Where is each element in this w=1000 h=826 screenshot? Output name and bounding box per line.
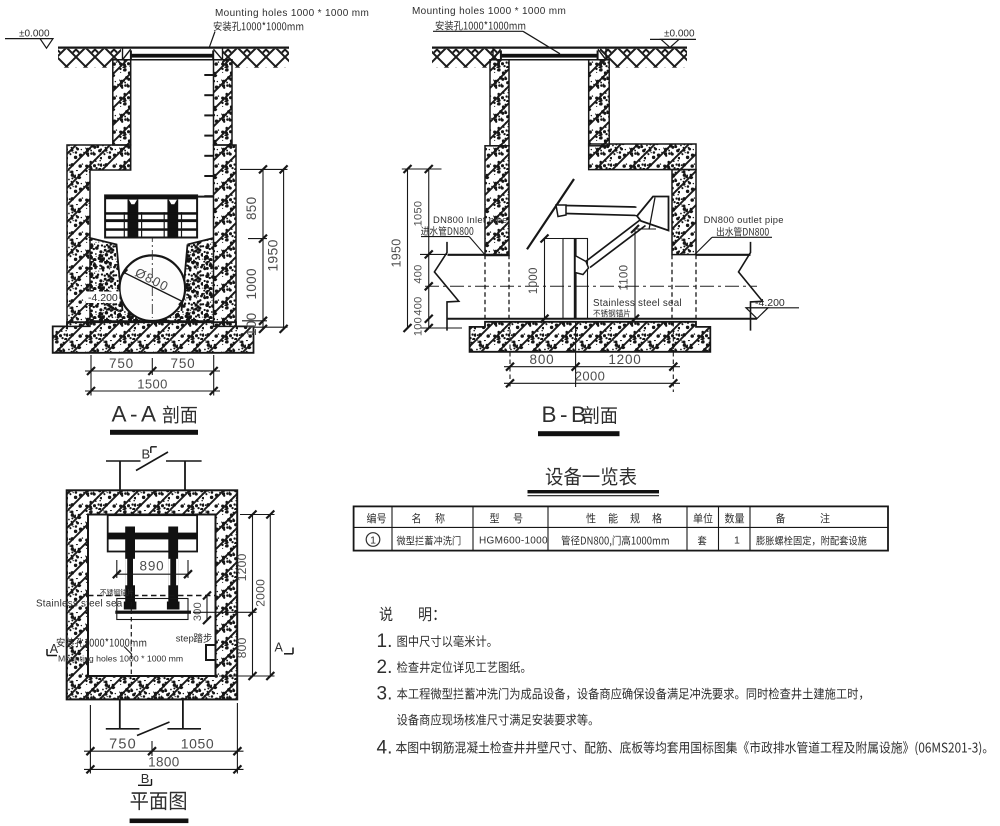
svg-text:100: 100 — [244, 313, 259, 336]
svg-text:1950: 1950 — [390, 238, 404, 267]
svg-text:1100: 1100 — [619, 265, 631, 291]
svg-text:2000: 2000 — [575, 369, 606, 384]
svg-text:850: 850 — [244, 197, 259, 220]
svg-text:4.: 4. — [377, 738, 393, 759]
svg-text:-4.200: -4.200 — [88, 292, 118, 304]
svg-text:800: 800 — [530, 352, 555, 367]
svg-text:Stainless steel sea: Stainless steel sea — [36, 599, 123, 610]
svg-text:400: 400 — [413, 264, 425, 283]
svg-text:1200: 1200 — [235, 553, 249, 581]
svg-text:400: 400 — [413, 296, 425, 315]
svg-text:DN800 outlet pipe: DN800 outlet pipe — [704, 214, 784, 225]
svg-text:B-B: B-B — [542, 402, 590, 427]
svg-text:800: 800 — [235, 637, 249, 658]
svg-text:Mounting holes 1000 * 1000 mm: Mounting holes 1000 * 1000 mm — [215, 8, 369, 19]
svg-text:300: 300 — [192, 602, 204, 621]
svg-text:1500: 1500 — [137, 377, 168, 392]
svg-text:Mounting holes 1000 * 1000 mm: Mounting holes 1000 * 1000 mm — [58, 654, 183, 664]
svg-text:1000: 1000 — [244, 268, 259, 299]
svg-text:DN800 Inlet pipe: DN800 Inlet pipe — [433, 214, 508, 225]
svg-text:1050: 1050 — [413, 201, 425, 227]
svg-text:Mounting holes 1000 * 1000 mm: Mounting holes 1000 * 1000 mm — [412, 6, 566, 17]
svg-text:750: 750 — [109, 737, 137, 753]
svg-text:A-A: A-A — [112, 402, 160, 427]
svg-text:750: 750 — [109, 356, 134, 371]
svg-text:±0.000: ±0.000 — [19, 29, 50, 40]
svg-text:1800: 1800 — [148, 755, 180, 770]
svg-text:B: B — [141, 771, 150, 786]
svg-text:1000: 1000 — [528, 267, 540, 294]
svg-text:1: 1 — [370, 535, 376, 547]
svg-text:1950: 1950 — [265, 239, 281, 271]
svg-text:Stainless steel seal: Stainless steel seal — [593, 298, 682, 309]
svg-text:1200: 1200 — [608, 352, 641, 367]
svg-text:A: A — [275, 641, 284, 655]
svg-text:2000: 2000 — [254, 579, 268, 607]
svg-text:step: step — [176, 634, 194, 645]
svg-text:±0.000: ±0.000 — [664, 29, 695, 40]
svg-text:B: B — [142, 447, 151, 462]
svg-text:2.: 2. — [377, 657, 393, 678]
svg-text:890: 890 — [140, 559, 165, 574]
svg-text:HGM600-1000: HGM600-1000 — [479, 536, 548, 547]
svg-text:100: 100 — [413, 317, 425, 336]
svg-text:A: A — [50, 642, 59, 656]
svg-text:1: 1 — [734, 535, 740, 547]
svg-text:3.: 3. — [377, 684, 393, 705]
svg-text:1.: 1. — [377, 631, 393, 652]
svg-text:1050: 1050 — [181, 736, 215, 752]
svg-text:750: 750 — [171, 356, 196, 371]
